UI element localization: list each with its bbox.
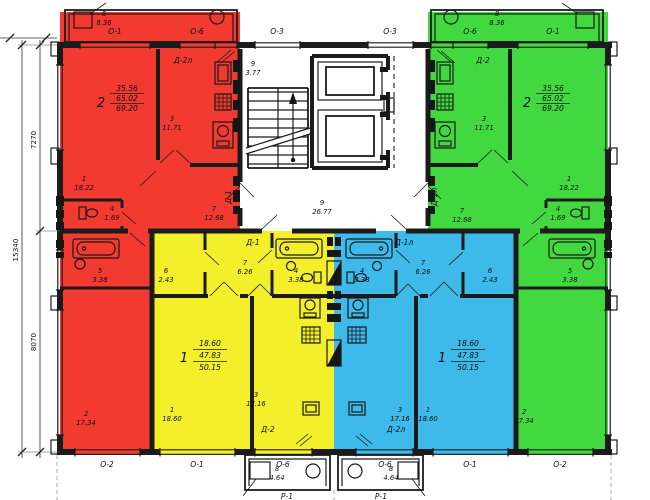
porch-drain-left	[306, 464, 320, 478]
porch-drain-right	[348, 464, 362, 478]
apartment-number: 2	[523, 96, 531, 111]
room-area: 17.16	[390, 415, 410, 423]
window-mark: О-1	[190, 460, 204, 469]
elevator-car-small	[326, 67, 374, 95]
room-number: 3	[398, 406, 402, 414]
room-number: 4	[360, 267, 364, 275]
room-number: 3	[482, 115, 486, 123]
room-number: 3	[254, 391, 258, 399]
apartment-number: 1	[180, 351, 188, 366]
room-number: 8	[275, 465, 280, 473]
apartment-number: 2	[97, 96, 105, 111]
window-mark: О-3	[383, 27, 397, 36]
door-mark-red-entry: Д-1	[224, 190, 233, 205]
room-number: 5	[98, 267, 102, 275]
room-area: 3.38	[354, 276, 370, 284]
room-area: 6.26	[237, 268, 253, 276]
room-number: 4	[556, 205, 560, 213]
porch-box-left	[250, 462, 270, 479]
room-number: 2	[522, 408, 526, 416]
room-area: 4.64	[383, 474, 398, 482]
apartment-living-area: 35.56	[116, 84, 138, 93]
room-number: 1	[82, 175, 86, 183]
room-area: 11.71	[162, 124, 181, 132]
room-number: 1	[567, 175, 571, 183]
door-mark-green-entry: Д-1л	[430, 188, 439, 208]
room-number: 9	[251, 60, 255, 68]
room-number: 6	[164, 267, 169, 275]
room-area: 18.60	[162, 415, 181, 423]
room-area: 11.71	[474, 124, 493, 132]
apartment-living-area: 18.60	[457, 339, 479, 348]
apartment-living-area: 18.60	[199, 339, 221, 348]
stairs	[246, 88, 310, 168]
room-area: 18.60	[418, 415, 437, 423]
room-area: 17.34	[514, 417, 533, 425]
window-mark: О-6	[190, 27, 204, 36]
apartment-useful-area: 65.02	[542, 94, 564, 103]
room-number: 6	[488, 267, 493, 275]
room-area: 6.26	[415, 268, 431, 276]
floor-plan-page: О-1 О-6 О-3 О-3 О-6 О-1 О-2 О-1 О-6 О-6 …	[0, 0, 650, 500]
room-area: 2.43	[482, 276, 497, 284]
room-area: 18.22	[559, 184, 578, 192]
room-number: 5	[568, 267, 572, 275]
room-number: 7	[212, 205, 217, 213]
door-mark-yellow-entry: Д-1	[245, 238, 260, 247]
door-mark-blue-entry: Д-1л	[394, 238, 414, 247]
apartment-living-area: 35.56	[542, 84, 564, 93]
room-number: 8	[389, 465, 394, 473]
room-area: 26.77	[312, 208, 332, 216]
room-area: 2.43	[158, 276, 173, 284]
window-mark: О-1	[108, 27, 122, 36]
window-mark: О-1	[463, 460, 477, 469]
apartment-useful-area: 47.83	[199, 351, 221, 360]
window-mark: О-6	[463, 27, 477, 36]
room-number: 8	[495, 10, 500, 18]
room-area: 3.38	[288, 276, 304, 284]
door-mark-red-balcony: Д-2л	[173, 56, 193, 65]
room-number: 7	[243, 259, 248, 267]
room-area: 4.64	[269, 474, 284, 482]
stair-arrow-start	[291, 158, 295, 162]
room-number: 8	[102, 10, 107, 18]
door-mark-yellow-balcony: Д-2	[260, 425, 275, 434]
room-area: 12.68	[452, 216, 472, 224]
window-mark: О-2	[553, 460, 567, 469]
room-area: 17.16	[246, 400, 266, 408]
elevator-door-jamb-3	[380, 112, 388, 117]
room-area: 3.38	[562, 276, 578, 284]
room-number: 7	[421, 259, 426, 267]
window-mark: О-1	[546, 27, 560, 36]
room-area: 18.22	[74, 184, 93, 192]
room-number: 3	[170, 115, 174, 123]
room-area: 8.36	[489, 19, 505, 27]
room-number: 1	[426, 406, 430, 414]
elevator-car-large	[326, 116, 374, 156]
elevator-door-jamb-4	[380, 155, 388, 160]
room-number: 2	[84, 410, 88, 418]
room-number: 9	[320, 199, 324, 207]
room-number: 7	[460, 207, 465, 215]
dimension-total: 15340	[11, 238, 20, 261]
apartment-total-area: 50.15	[199, 363, 221, 372]
apartment-total-area: 69.20	[116, 104, 138, 113]
apartment-total-area: 50.15	[457, 363, 479, 372]
apartment-total-area: 69.20	[542, 104, 564, 113]
floor-plan-drawing: О-1 О-6 О-3 О-3 О-6 О-1 О-2 О-1 О-6 О-6 …	[0, 0, 650, 500]
stair-arrow-head	[289, 92, 297, 104]
apartment-useful-area: 65.02	[116, 94, 138, 103]
room-area: 17.34	[76, 419, 95, 427]
room-area: 3.38	[92, 276, 108, 284]
window-mark: О-3	[270, 27, 284, 36]
door-mark-blue-balcony: Д-2л	[386, 425, 406, 434]
porch-mark-right: Р-1	[375, 492, 387, 500]
porch-mark-left: Р-1	[281, 492, 293, 500]
room-number: 4	[110, 205, 114, 213]
door-mark-green-balcony: Д-2	[475, 56, 490, 65]
dimension-upper: 7270	[29, 130, 38, 149]
room-area: 1.69	[104, 214, 119, 222]
porch-box-right	[398, 462, 418, 479]
room-area: 1.69	[550, 214, 565, 222]
room-area: 8.36	[96, 19, 112, 27]
window-mark: О-2	[100, 460, 114, 469]
room-number: 1	[170, 406, 174, 414]
room-area: 12.68	[204, 214, 224, 222]
elevator-door-jamb-1	[380, 67, 388, 72]
elevator-shaft-large	[318, 110, 382, 162]
room-number: 4	[294, 267, 298, 275]
apartment-number: 1	[438, 351, 446, 366]
room-area: 3.77	[245, 69, 261, 77]
elevators	[318, 56, 394, 168]
apartment-useful-area: 47.83	[457, 351, 479, 360]
dimension-lower: 8070	[29, 332, 38, 351]
